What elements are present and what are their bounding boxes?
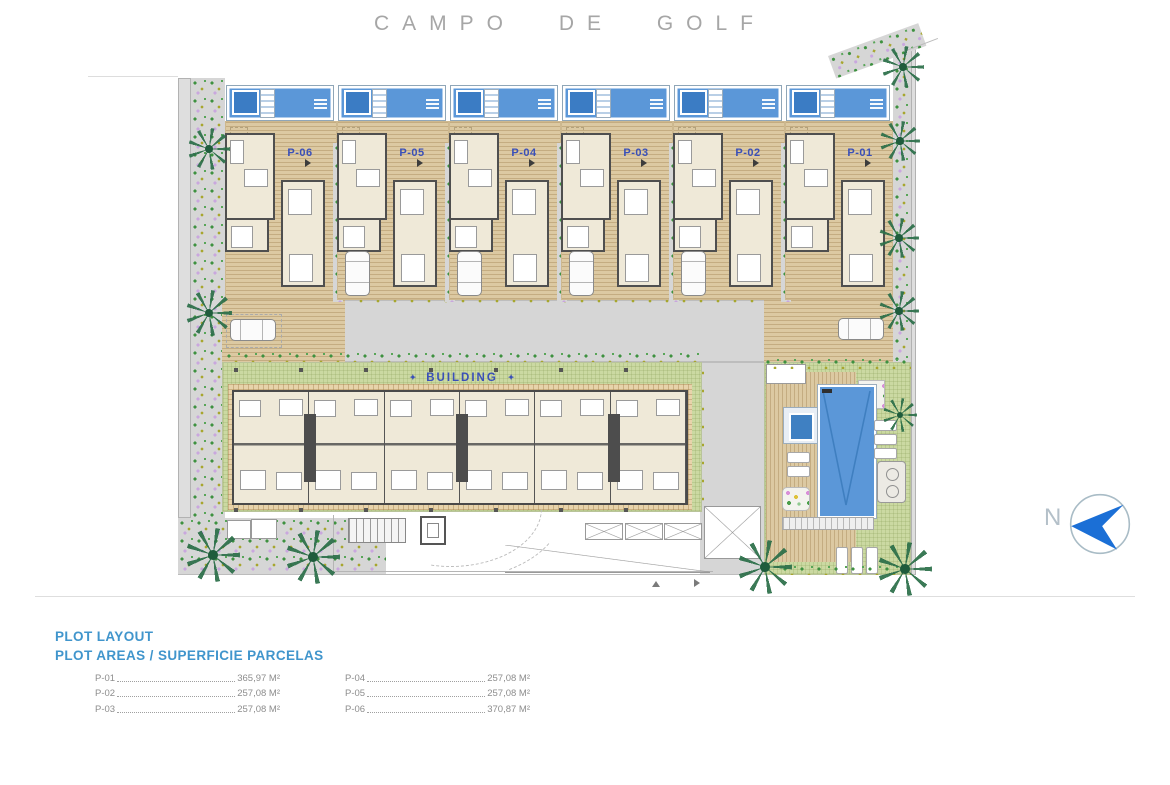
sun-lounger-icon: [874, 448, 897, 459]
car-icon: [345, 251, 370, 296]
page-title: CAMPO DE GOLF: [0, 12, 1140, 36]
plot-label: P-04: [499, 147, 549, 159]
ramp-slope-marker: [625, 523, 663, 540]
legend-subtitle: PLOT AREAS / SUPERFICIE PARCELAS: [55, 648, 324, 663]
bed-icon: [625, 254, 649, 282]
pool-ladder-icon: [426, 99, 439, 109]
pool-steps-icon: [260, 89, 275, 118]
plot-house-living: [561, 133, 611, 220]
plot-house-entry: [337, 218, 381, 252]
sun-lounger-icon: [787, 466, 810, 477]
plot-area-row: P-02 257,08 M²: [95, 684, 280, 700]
pool-ladder-icon: [762, 99, 775, 109]
diamond-icon: ✦: [400, 373, 427, 382]
entrance-arrow-icon: [753, 159, 759, 167]
plot-label: P-05: [387, 147, 437, 159]
plot-spa: [344, 90, 371, 115]
plot-spa: [456, 90, 483, 115]
entrance-arrow-icon: [865, 159, 871, 167]
plot: P-04: [449, 85, 561, 300]
plot-spa: [680, 90, 707, 115]
palm-tree-icon: [883, 398, 917, 432]
bed-icon: [512, 189, 536, 215]
plot: P-06: [225, 85, 337, 300]
sofa-icon: [342, 140, 356, 164]
plot-area-value: 257,08 M²: [237, 688, 280, 699]
pool-ladder-icon: [314, 99, 327, 109]
plot-house-entry: [225, 218, 269, 252]
plot-area-row: P-05 257,08 M²: [345, 684, 530, 700]
building-unit: [460, 392, 535, 503]
building-unit: [385, 392, 460, 503]
pool-ladder-icon: [870, 99, 883, 109]
bed-icon: [848, 189, 872, 215]
plot-pool: [562, 85, 670, 121]
plot-area-label: P-05: [345, 688, 365, 699]
plot-pool: [674, 85, 782, 121]
bed-icon: [343, 226, 365, 248]
plot-area-value: 257,08 M²: [237, 704, 280, 715]
dining-table-icon: [356, 169, 380, 187]
palm-tree-icon: [879, 291, 919, 331]
plot-area-value: 365,97 M²: [237, 673, 280, 684]
building-unit: [611, 392, 686, 503]
sun-lounger-icon: [787, 452, 810, 463]
entrance-arrow-icon: [529, 159, 535, 167]
stairs: [348, 518, 406, 543]
pool-ladder-icon: [538, 99, 551, 109]
dining-table-icon: [804, 169, 828, 187]
plot-areas-column-2: P-04 257,08 M² P-05 257,08 M² P-06 370,8…: [345, 668, 530, 715]
road-arrow-icon: [694, 579, 700, 587]
bed-icon: [567, 226, 589, 248]
palm-tree-icon: [879, 218, 919, 258]
main-pool: [818, 385, 876, 518]
plot: P-01: [785, 85, 893, 300]
pool-steps-icon: [596, 89, 611, 118]
ramp-slope-marker: [585, 523, 623, 540]
plot-area-row: P-04 257,08 M²: [345, 668, 530, 684]
bed-icon: [849, 254, 873, 282]
sofa-icon: [230, 140, 244, 164]
plot-area-label: P-01: [95, 673, 115, 684]
north-label: N: [1044, 504, 1061, 532]
plot-house-entry: [449, 218, 493, 252]
plot-area-value: 257,08 M²: [487, 688, 530, 699]
dotted-leader: [117, 681, 235, 682]
plot-area-label: P-02: [95, 688, 115, 699]
sofa-icon: [678, 140, 692, 164]
plot-house-living: [225, 133, 275, 220]
barbecue-counter: [877, 461, 906, 503]
bed-icon: [736, 189, 760, 215]
bed-icon: [791, 226, 813, 248]
plot-areas-column-1: P-01 365,97 M² P-02 257,08 M² P-03 257,0…: [95, 668, 280, 715]
building-label: ✦BUILDING✦: [222, 372, 702, 384]
plot: P-03: [561, 85, 673, 300]
plot-area-row: P-01 365,97 M²: [95, 668, 280, 684]
kids-pool: [783, 407, 818, 444]
plot-house-bedrooms: [505, 180, 549, 287]
pool-steps-icon: [372, 89, 387, 118]
road-arrow-icon: [652, 581, 660, 587]
car-icon: [569, 251, 594, 296]
dotted-leader: [367, 696, 485, 697]
hedge-pool-top: [764, 357, 911, 369]
palm-tree-icon: [878, 542, 932, 596]
bed-icon: [288, 189, 312, 215]
plot-house-living: [337, 133, 387, 220]
building-unit: [535, 392, 610, 503]
pool-steps-icon: [820, 89, 835, 118]
bed-icon: [401, 254, 425, 282]
compass-icon: [1068, 492, 1132, 556]
plot-label: P-06: [275, 147, 325, 159]
dotted-leader: [367, 681, 485, 682]
diamond-icon: ✦: [498, 373, 525, 382]
plot-area-row: P-06 370,87 M²: [345, 699, 530, 715]
boundary-line-left: [88, 76, 178, 77]
bed-icon: [400, 189, 424, 215]
plot-house-entry: [673, 218, 717, 252]
plot-area-row: P-03 257,08 M²: [95, 699, 280, 715]
plot-house-living: [449, 133, 499, 220]
dining-table-icon: [692, 169, 716, 187]
entrance-arrow-icon: [417, 159, 423, 167]
bed-icon: [455, 226, 477, 248]
bed-icon: [737, 254, 761, 282]
car-icon: [457, 251, 482, 296]
bed-icon: [624, 189, 648, 215]
plot-house-bedrooms: [729, 180, 773, 287]
plot-area-label: P-03: [95, 704, 115, 715]
legend-title: PLOT LAYOUT: [55, 629, 153, 644]
plot-area-label: P-04: [345, 673, 365, 684]
bed-icon: [231, 226, 253, 248]
pool-steps: [782, 517, 874, 530]
stair-core: [608, 414, 620, 482]
plot-house-living: [673, 133, 723, 220]
dining-table-icon: [580, 169, 604, 187]
palm-tree-icon: [738, 540, 792, 594]
building-columns-top: [234, 368, 686, 372]
site-plan-page: CAMPO DE GOLF: [0, 0, 1170, 785]
entrance-arrow-icon: [305, 159, 311, 167]
car-icon: [838, 318, 884, 340]
sun-lounger-icon: [874, 434, 897, 445]
sofa-icon: [454, 140, 468, 164]
storage-box: [251, 519, 277, 539]
dining-table-icon: [244, 169, 268, 187]
plot-pool: [226, 85, 334, 121]
flower-planter: [782, 487, 810, 511]
car-icon: [681, 251, 706, 296]
plot-spa: [232, 90, 259, 115]
plot-area-label: P-06: [345, 704, 365, 715]
north-arrow: N: [1044, 492, 1136, 558]
sofa-icon: [566, 140, 580, 164]
plot-label: P-01: [835, 147, 885, 159]
plot-area-value: 257,08 M²: [487, 673, 530, 684]
plot-label: P-02: [723, 147, 773, 159]
plot-house-entry: [785, 218, 829, 252]
pool-ladder-icon: [650, 99, 663, 109]
dotted-leader: [117, 696, 235, 697]
plot-pool: [450, 85, 558, 121]
entrance-arrow-icon: [641, 159, 647, 167]
plot-pool: [338, 85, 446, 121]
plot-house-bedrooms: [281, 180, 325, 287]
stair-core: [304, 414, 316, 482]
building-unit: [234, 392, 309, 503]
pool-lane-lines: [820, 387, 873, 515]
plot-area-value: 370,87 M²: [487, 704, 530, 715]
car-icon: [230, 319, 276, 341]
ramp-slope-marker: [664, 523, 702, 540]
palm-tree-icon: [188, 128, 230, 170]
building-unit: [309, 392, 384, 503]
plot-spa: [792, 90, 819, 115]
stair-core: [456, 414, 468, 482]
plot: P-05: [337, 85, 449, 300]
palm-tree-icon: [286, 530, 340, 584]
dotted-leader: [367, 712, 485, 713]
plot-pool: [786, 85, 890, 121]
dining-table-icon: [468, 169, 492, 187]
bed-icon: [289, 254, 313, 282]
plot: P-02: [673, 85, 785, 300]
palm-tree-icon: [882, 46, 924, 88]
pool-steps-icon: [708, 89, 723, 118]
dotted-leader: [117, 712, 235, 713]
kids-pool-water: [789, 413, 814, 441]
road-bottom-line: [35, 596, 1135, 597]
pool-steps-icon: [484, 89, 499, 118]
plot-house-entry: [561, 218, 605, 252]
ramp-wedge: [505, 545, 710, 573]
sofa-icon: [790, 140, 804, 164]
palm-tree-icon: [880, 121, 920, 161]
palm-tree-icon: [186, 290, 232, 336]
bed-icon: [679, 226, 701, 248]
plot-spa: [568, 90, 595, 115]
bed-icon: [513, 254, 537, 282]
apartment-building: [232, 390, 688, 505]
palm-tree-icon: [186, 528, 240, 582]
plot-house-bedrooms: [393, 180, 437, 287]
plot-label: P-03: [611, 147, 661, 159]
plot-house-living: [785, 133, 835, 220]
plot-house-bedrooms: [617, 180, 661, 287]
